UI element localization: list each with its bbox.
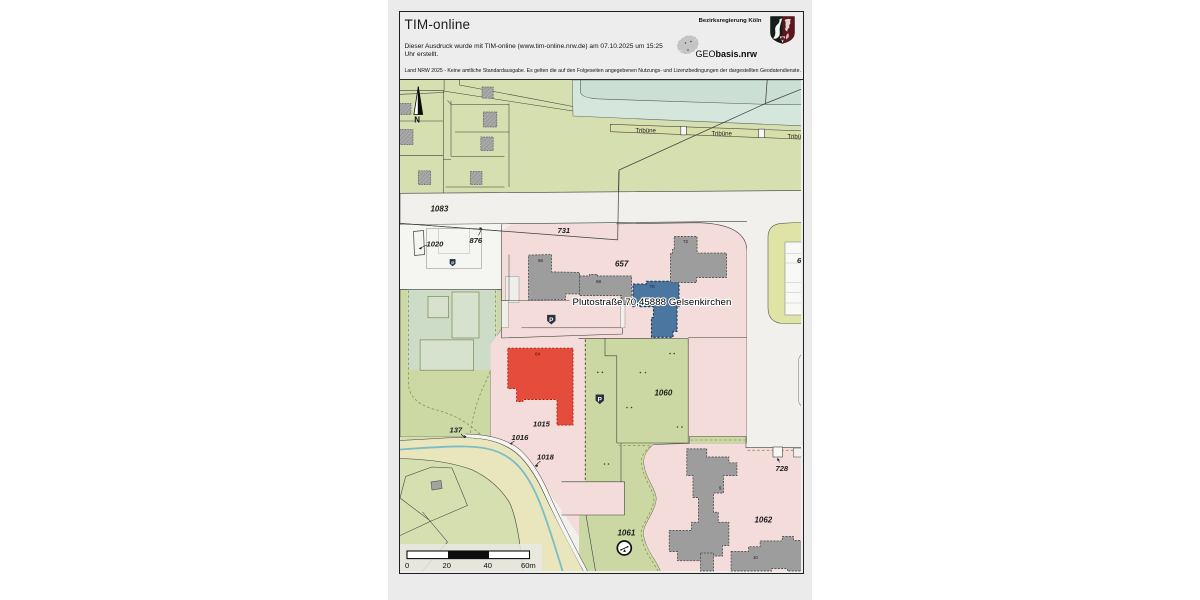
svg-text:1060: 1060	[654, 389, 672, 398]
svg-text:64: 64	[534, 352, 540, 357]
svg-text:0: 0	[404, 561, 408, 570]
svg-text:1015: 1015	[532, 420, 550, 429]
svg-text:1062: 1062	[754, 516, 772, 525]
svg-text:728: 728	[775, 464, 788, 473]
svg-text:40: 40	[483, 561, 491, 570]
svg-text:Tribüne: Tribüne	[635, 128, 656, 135]
svg-text:731: 731	[557, 226, 570, 235]
svg-text:72: 72	[682, 239, 688, 244]
svg-text:GEObasis.nrw: GEObasis.nrw	[695, 49, 758, 59]
svg-text:1016: 1016	[511, 433, 529, 442]
svg-text:657: 657	[614, 260, 628, 269]
svg-text:10: 10	[752, 555, 757, 560]
svg-text:Tribüne: Tribüne	[711, 130, 732, 137]
svg-text:N: N	[414, 115, 420, 124]
svg-text:1083: 1083	[430, 205, 448, 214]
svg-text:Tribüne: Tribüne	[787, 133, 801, 140]
svg-text:68: 68	[595, 279, 601, 284]
svg-text:70: 70	[649, 284, 655, 289]
svg-text:20: 20	[442, 561, 450, 570]
svg-text:66: 66	[796, 256, 800, 265]
svg-text:1020: 1020	[426, 240, 444, 249]
svg-text:P: P	[597, 397, 602, 404]
svg-text:Plutostraße 70,45888 Gelsenkir: Plutostraße 70,45888 Gelsenkirchen	[572, 297, 731, 308]
svg-text:60m: 60m	[520, 561, 535, 570]
svg-text:1018: 1018	[536, 453, 554, 462]
svg-text:137: 137	[449, 426, 462, 435]
svg-text:876: 876	[469, 236, 482, 245]
svg-text:66: 66	[537, 258, 543, 263]
svg-text:P: P	[549, 317, 554, 324]
svg-text:1061: 1061	[617, 529, 635, 538]
